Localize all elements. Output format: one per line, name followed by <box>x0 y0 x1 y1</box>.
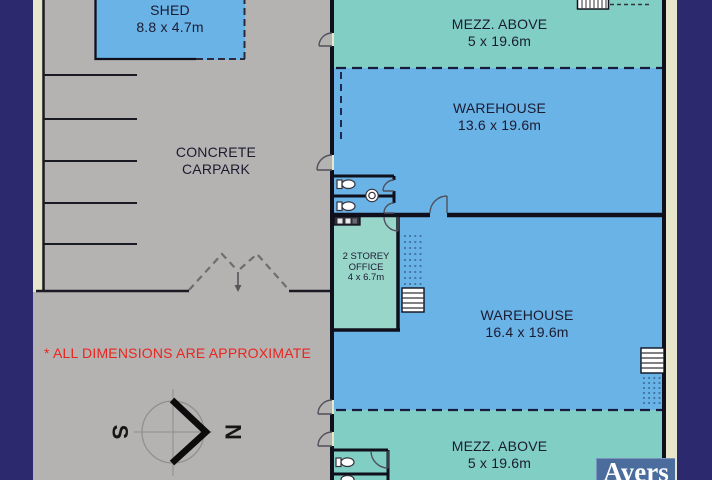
room-name: MEZZ. ABOVE <box>336 16 663 33</box>
room-name: MEZZ. ABOVE <box>336 438 663 455</box>
shed-label: SHED 8.8 x 4.7m <box>95 2 245 36</box>
room-warehouse-top <box>334 68 664 215</box>
warehouse-bottom-label: WAREHOUSE 16.4 x 19.6m <box>390 307 664 341</box>
agency-logo-text: Ayers <box>603 458 668 480</box>
room-name-line2: CARPARK <box>141 161 291 178</box>
carpark-label: CONCRETE CARPARK <box>141 144 291 178</box>
room-carpark-lower <box>33 292 332 480</box>
room-dims: 16.4 x 19.6m <box>390 324 664 341</box>
room-name: WAREHOUSE <box>336 100 663 117</box>
office-label: 2 STOREY OFFICE 4 x 6.7m <box>333 252 399 284</box>
room-dims: 4 x 6.7m <box>333 273 399 284</box>
room-name-line1: 2 STOREY <box>333 252 399 263</box>
room-name-line1: CONCRETE <box>141 144 291 161</box>
room-dims: 13.6 x 19.6m <box>336 117 663 134</box>
agency-logo: Ayers <box>596 458 675 480</box>
page-border-right <box>677 0 712 480</box>
room-name: WAREHOUSE <box>390 307 664 324</box>
room-name: SHED <box>95 2 245 19</box>
room-dims: 5 x 19.6m <box>336 33 663 50</box>
dimensions-disclaimer: * ALL DIMENSIONS ARE APPROXIMATE <box>44 346 324 361</box>
floorplan-canvas: S N SHED 8.8 x 4.7m CONCRETE CARPARK MEZ… <box>0 0 712 480</box>
room-dims: 8.8 x 4.7m <box>95 19 245 36</box>
page-border-left <box>0 0 33 480</box>
warehouse-top-label: WAREHOUSE 13.6 x 19.6m <box>336 100 663 134</box>
mezz-top-label: MEZZ. ABOVE 5 x 19.6m <box>336 16 663 50</box>
